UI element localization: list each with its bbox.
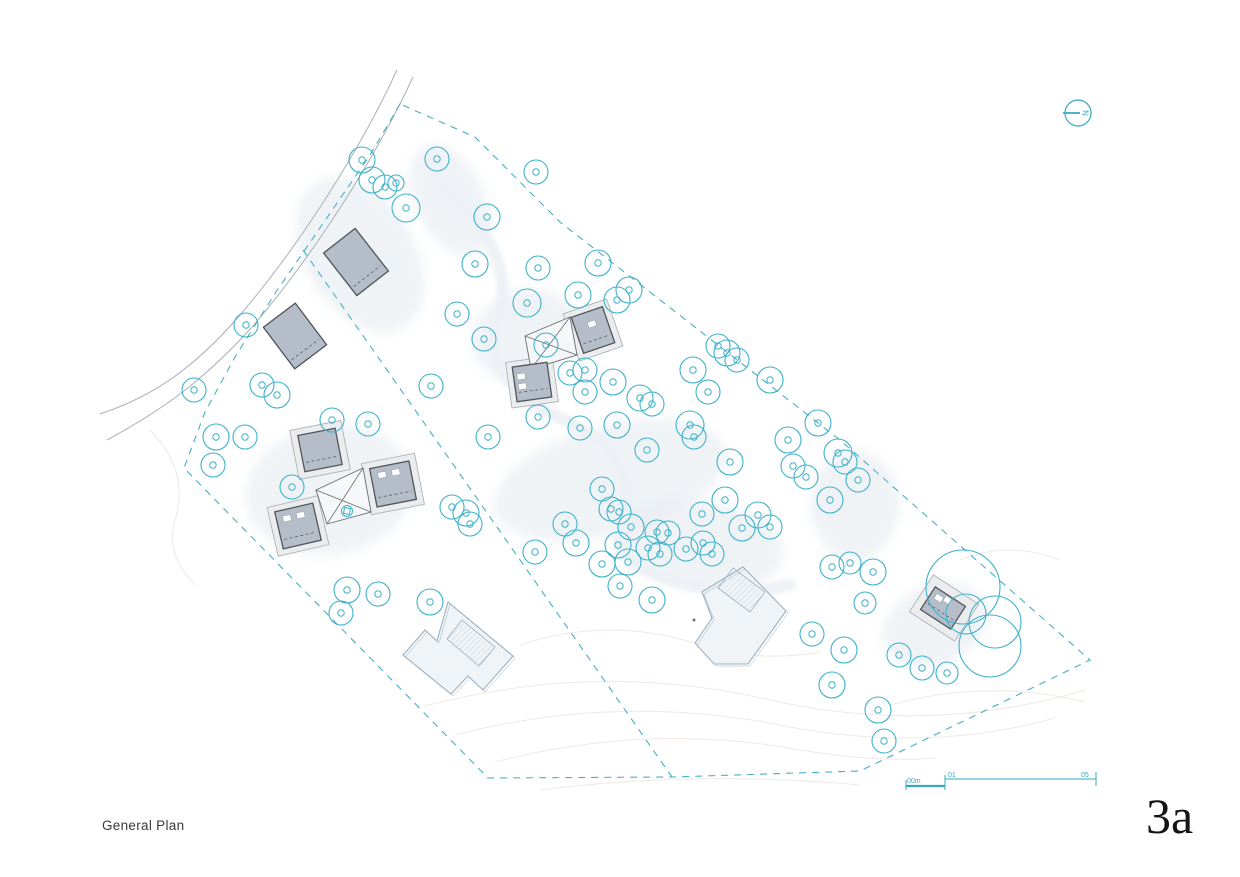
tree-trunk [847,560,853,566]
contour-line [150,430,195,585]
tree-trunk [785,437,791,443]
tree-trunk [344,587,350,593]
tree-canopy [250,373,274,397]
tree-canopy [440,495,464,519]
tree-trunk [403,205,409,211]
tree-trunk [259,382,265,388]
tree-canopy [334,577,360,603]
building [298,428,342,472]
terrain-shadow-layer [235,131,1002,685]
building [275,503,322,549]
tree-trunk [755,512,761,518]
tree-canopy [233,425,257,449]
building-roof [263,303,326,369]
tree-trunk [375,591,381,597]
building-roof [298,428,342,472]
tree-trunk [567,370,573,376]
tree-canopy [359,167,385,193]
tree-trunk [428,383,434,389]
tree-canopy [600,369,626,395]
tree-trunk [829,682,835,688]
contour-line [540,779,860,790]
tree-canopy [775,427,801,453]
tree-canopy [476,425,500,449]
building [370,461,417,507]
tree-canopy [417,589,443,615]
tree-trunk [595,260,601,266]
tree-canopy [558,361,582,385]
tree-trunk [582,389,588,395]
tree-trunk [533,169,539,175]
tree-trunk [242,434,248,440]
tree-trunk [790,463,796,469]
tree-canopy [458,512,482,536]
building-roof [275,503,322,549]
tree-canopy [589,551,615,577]
tree-canopy [860,559,886,585]
tree-trunk [535,265,541,271]
tree-canopy [329,601,353,625]
contour-line [455,711,1055,738]
tree-canopy [706,334,730,358]
building [512,362,552,402]
tree-canopy [696,380,720,404]
drawing-sheet: N 00m 01 05 General Plan 3a [0,0,1240,877]
tree-trunk [881,738,887,744]
tree-canopy [865,697,891,723]
tree-canopy [872,729,896,753]
scale-label-end: 05 [1081,772,1089,779]
building-roof [370,461,417,507]
scale-label-start: 00m [907,778,921,785]
tree-trunk [610,379,616,385]
tree-canopy [757,367,783,393]
site-plan-canvas: N 00m 01 05 [0,0,1240,877]
tree-trunk [427,599,433,605]
tree-canopy [639,587,665,613]
tree-trunk [870,569,876,575]
tree-trunk [841,647,847,653]
tree-trunk [365,421,371,427]
tree-canopy [201,453,225,477]
tree-trunk [359,157,365,163]
tree-trunk [944,670,950,676]
contour-line [495,738,935,762]
tree-trunk [210,462,216,468]
tree-canopy [819,672,845,698]
tree-trunk [213,434,219,440]
tree-trunk [649,597,655,603]
north-arrow: N [1063,100,1091,126]
tree-canopy [203,424,229,450]
tree-trunk [582,367,588,373]
tree-canopy [854,592,876,614]
tree-canopy [585,250,611,276]
north-label: N [1081,110,1090,116]
scale-bar: 00m 01 05 [906,772,1096,790]
skylight [518,383,527,390]
tree-trunk [862,600,868,606]
contour-line [520,630,820,656]
tree-canopy [523,540,547,564]
building [263,303,326,369]
tree-canopy [604,287,630,313]
tree-canopy [573,358,597,382]
tree-trunk [875,707,881,713]
existing-house-layer [403,567,788,696]
tree-trunk [705,389,711,395]
tree-canopy [800,622,824,646]
tree-canopy [349,147,375,173]
tree-canopy [419,374,443,398]
tree-trunk [599,561,605,567]
tree-canopy [366,582,390,606]
skylight [391,469,400,476]
tree-trunk [829,564,835,570]
tree-trunk [243,322,249,328]
tree-canopy [462,251,488,277]
tree-trunk [690,367,696,373]
building-roof [512,362,552,402]
tree-trunk [809,631,815,637]
survey-dot [693,619,696,622]
drawing-title: General Plan [102,818,184,833]
tree-trunk [532,549,538,555]
tree-canopy [936,662,958,684]
tree-canopy [565,282,591,308]
tree-trunk [727,459,733,465]
tree-trunk [485,434,491,440]
skylight [378,471,387,478]
tree-canopy [524,160,548,184]
tree-trunk [454,311,460,317]
tree-canopy [445,302,469,326]
terrain-shadow [810,450,900,560]
sheet-number: 3a [1146,791,1193,841]
tree-trunk [535,414,541,420]
tree-canopy [526,256,550,280]
tree-trunk [617,583,623,589]
skylight [517,373,526,380]
tree-trunk [338,610,344,616]
tree-trunk [472,261,478,267]
tree-trunk [274,392,280,398]
tree-trunk [803,474,809,480]
tree-trunk [734,357,740,363]
tree-trunk [191,387,197,393]
tree-trunk [575,292,581,298]
tree-trunk [614,297,620,303]
scale-label-mid: 01 [948,772,956,779]
tree-canopy [680,357,706,383]
tree-canopy [608,574,632,598]
tree-trunk [722,497,728,503]
tree-trunk [767,377,773,383]
tree-canopy [831,637,857,663]
